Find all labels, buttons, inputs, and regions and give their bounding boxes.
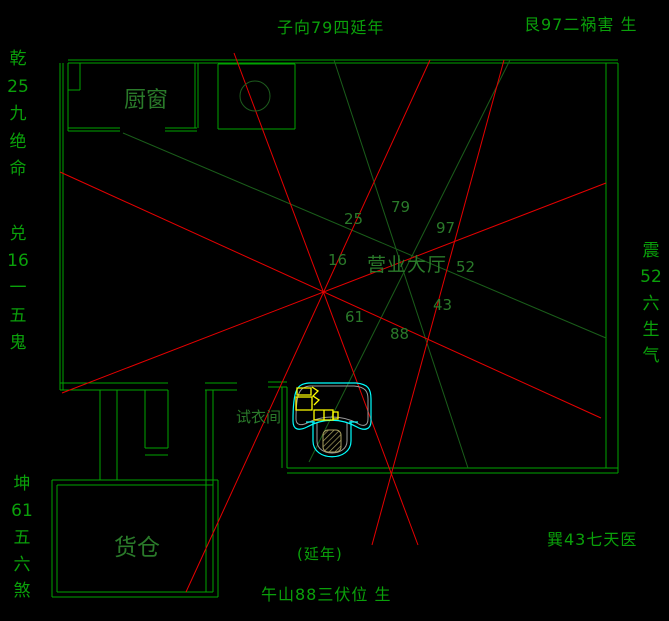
- label-gen-northeast: 艮97二祸害 生: [524, 11, 637, 35]
- hose-squiggle: [312, 387, 319, 405]
- label-kun-southwest: 坤 61 五 六 煞: [7, 471, 37, 605]
- vanity-counter-outline: [293, 383, 371, 429]
- label-yannian-note: (延年): [297, 543, 343, 564]
- sector-line-red: [62, 183, 606, 393]
- label-south-mountain: 午山88三伏位 生: [261, 581, 391, 605]
- label-north-facing: 子向79四延年: [277, 14, 384, 38]
- sector-number-79: 79: [391, 198, 410, 216]
- sector-number-16: 16: [328, 251, 347, 269]
- sector-number-52: 52: [456, 258, 475, 276]
- sector-number-97: 97: [436, 219, 455, 237]
- sector-line-green: [123, 133, 606, 338]
- room-label-fitting-room: 试衣间: [236, 406, 281, 427]
- label-zhen-east: 震 52 六 生 气: [636, 238, 666, 370]
- label-dui-west: 兑 16 一 五 鬼: [3, 221, 33, 357]
- sector-number-43: 43: [433, 296, 452, 314]
- cad-viewport: 子向79四延年 艮97二祸害 生 乾 25 九 绝 命 兑 16 一 五 鬼 坤…: [0, 0, 669, 621]
- room-label-kitchen: 厨窗: [124, 82, 168, 114]
- label-xun-southeast: 巽43七天医: [547, 526, 637, 550]
- faucet-box-large: [296, 397, 312, 410]
- toilet-hatched-seat: [323, 430, 341, 452]
- stove-circle-icon: [240, 81, 270, 111]
- room-label-warehouse: 货仓: [114, 528, 160, 562]
- soap-tray: [314, 410, 333, 420]
- sector-number-25: 25: [344, 210, 363, 228]
- sector-number-88: 88: [390, 325, 409, 343]
- room-label-business-hall: 营业大厅: [367, 250, 447, 277]
- label-qian-northwest: 乾 25 九 绝 命: [3, 46, 33, 184]
- sector-line-red: [60, 172, 601, 418]
- sector-number-61: 61: [345, 308, 364, 326]
